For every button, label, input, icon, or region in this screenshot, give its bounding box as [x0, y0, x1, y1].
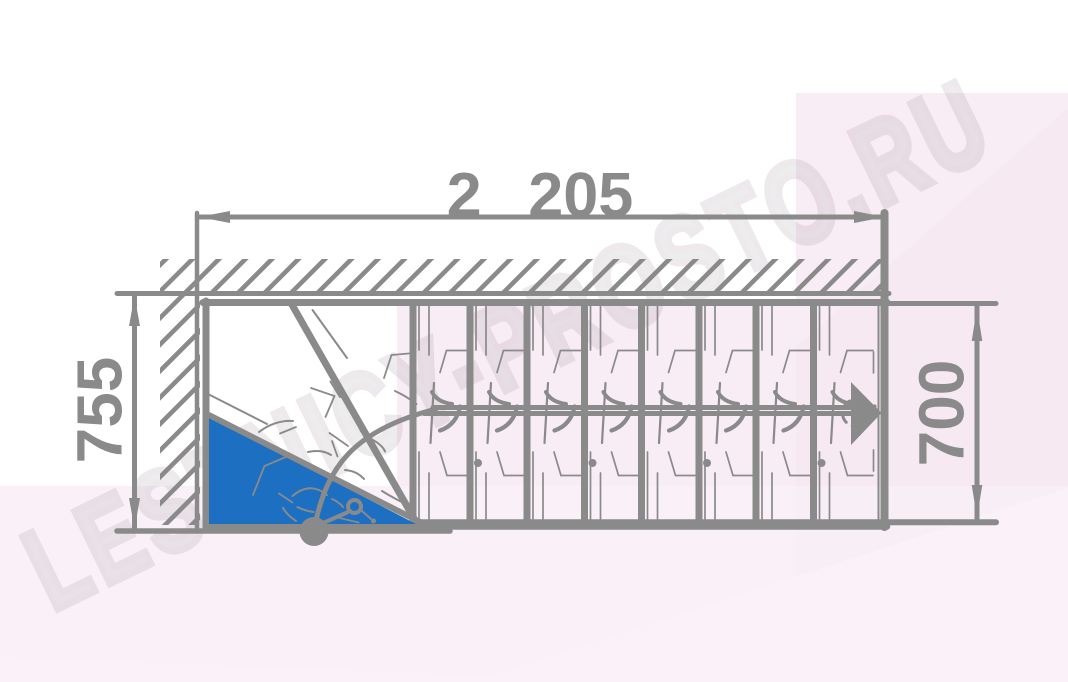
svg-text:755: 755: [63, 357, 135, 464]
svg-text:2 205: 2 205: [447, 161, 634, 231]
svg-text:700: 700: [905, 360, 977, 467]
